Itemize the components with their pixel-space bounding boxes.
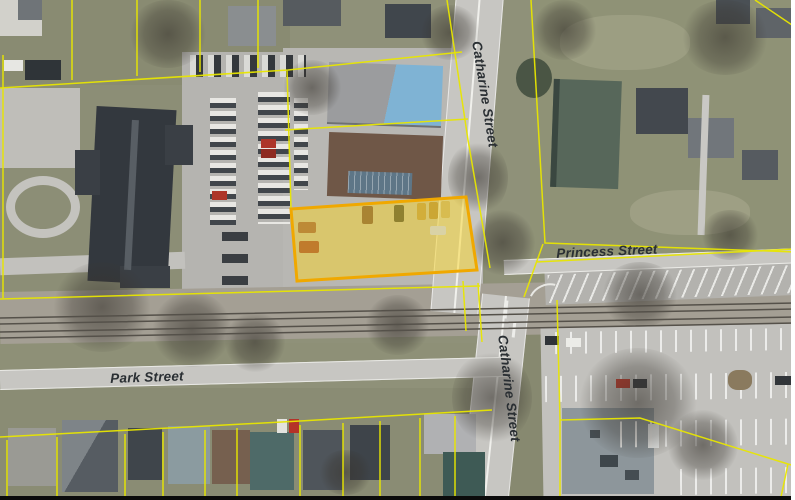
- roof-unit: [625, 470, 639, 480]
- apartment-wing: [75, 150, 100, 195]
- tree: [668, 410, 738, 480]
- house: [228, 6, 276, 46]
- shed: [742, 150, 778, 180]
- building-blue-roof: [327, 62, 443, 128]
- car-in-parcel: [430, 226, 446, 235]
- dark-car: [775, 376, 791, 385]
- planter-island: [728, 370, 752, 390]
- street-label-park: Park Street: [110, 368, 184, 386]
- house: [250, 432, 294, 490]
- tree: [680, 0, 770, 75]
- right-white-strip: [791, 0, 795, 500]
- car-in-parcel: [429, 202, 438, 219]
- parked-cars-column: [210, 98, 236, 226]
- tree: [225, 312, 285, 372]
- tree: [365, 295, 430, 355]
- tree: [470, 210, 535, 275]
- car-in-parcel: [394, 205, 404, 222]
- tree: [600, 262, 680, 327]
- house: [8, 428, 56, 486]
- house: [62, 420, 118, 492]
- tree: [52, 262, 152, 352]
- house: [688, 118, 734, 158]
- parking-stalls-row: [555, 328, 795, 354]
- tree: [128, 0, 208, 68]
- garage: [25, 60, 61, 80]
- red-car: [289, 419, 299, 433]
- apartment-wing: [165, 125, 193, 165]
- car-in-parcel: [299, 241, 319, 253]
- building-green-roof: [550, 79, 622, 189]
- tree: [282, 60, 342, 115]
- car-in-parcel: [417, 203, 426, 220]
- parked-cars-sparse: [222, 232, 248, 290]
- car-in-parcel: [362, 206, 373, 224]
- white-car: [566, 338, 581, 347]
- solar-panels: [348, 171, 413, 195]
- roof-unit: [600, 455, 618, 467]
- dark-car: [545, 336, 559, 345]
- tree: [318, 450, 373, 495]
- concrete-paths-left: [0, 88, 80, 168]
- tree: [700, 210, 760, 260]
- tree: [152, 292, 232, 367]
- white-car: [4, 60, 23, 71]
- house: [18, 0, 42, 20]
- house: [168, 426, 210, 484]
- white-car: [277, 419, 287, 433]
- red-car: [212, 191, 227, 200]
- parked-cars-column: [258, 92, 290, 224]
- tree: [532, 0, 597, 60]
- red-car: [261, 149, 276, 158]
- red-car: [261, 139, 276, 148]
- aerial-parcel-map[interactable]: Catharine Street Catharine Street Prince…: [0, 0, 795, 500]
- car-in-parcel: [441, 201, 450, 218]
- house-teal-roof: [443, 452, 485, 496]
- house: [283, 0, 341, 26]
- house: [212, 430, 250, 484]
- evergreen-tree: [516, 58, 552, 98]
- bottom-black-bar: [0, 496, 795, 500]
- car-in-parcel: [298, 222, 316, 233]
- house: [128, 428, 162, 480]
- loop-driveway: [6, 176, 80, 238]
- house: [636, 88, 688, 134]
